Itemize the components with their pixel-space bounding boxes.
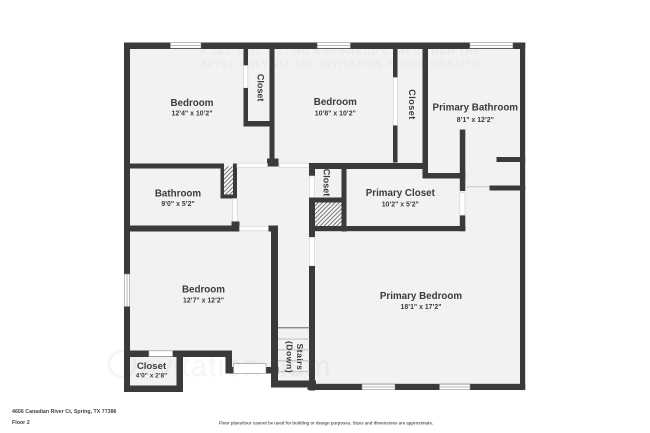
svg-text:18’1" x 17’2": 18’1" x 17’2" [400,304,441,311]
svg-text:Primary Closet: Primary Closet [366,188,436,199]
svg-text:8’1" x 12’2": 8’1" x 12’2" [457,117,494,124]
svg-text:Bathroom: Bathroom [155,188,202,199]
svg-text:Closet: Closet [137,361,167,372]
svg-text:Stairs: Stairs [295,344,305,371]
svg-text:12’4" x 10’2": 12’4" x 10’2" [171,111,212,118]
svg-text:Closet: Closet [322,169,332,197]
svg-text:(Down): (Down) [285,341,295,373]
svg-text:9’0" x 5’2": 9’0" x 5’2" [161,201,194,208]
svg-text:Bedroom: Bedroom [182,285,225,296]
svg-text:Closet: Closet [256,74,266,102]
svg-text:Closet: Closet [407,89,417,120]
svg-text:12’7" x 12’2": 12’7" x 12’2" [183,298,224,305]
svg-text:Bedroom: Bedroom [314,97,357,108]
svg-text:10’8" x 10’2": 10’8" x 10’2" [315,111,356,118]
svg-text:4’0" x 2’8": 4’0" x 2’8" [136,372,167,379]
svg-text:Primary Bedroom: Primary Bedroom [380,291,463,302]
svg-text:Bedroom: Bedroom [170,98,213,109]
svg-text:APPLY ONLY VIA THE INVITATION: APPLY ONLY VIA THE INVITATION HOMES WEBS… [200,59,480,70]
svg-text:Floor 2: Floor 2 [12,420,30,426]
svg-text:Primary Bathroom: Primary Bathroom [433,103,519,114]
svg-text:4606 Canadian River Ct, Spring: 4606 Canadian River Ct, Spring, TX 77386 [12,409,117,415]
svg-text:Floor plans/tour cannot be use: Floor plans/tour cannot be used for buil… [219,421,433,426]
svg-text:10’2" x 5’2": 10’2" x 5’2" [382,202,419,209]
